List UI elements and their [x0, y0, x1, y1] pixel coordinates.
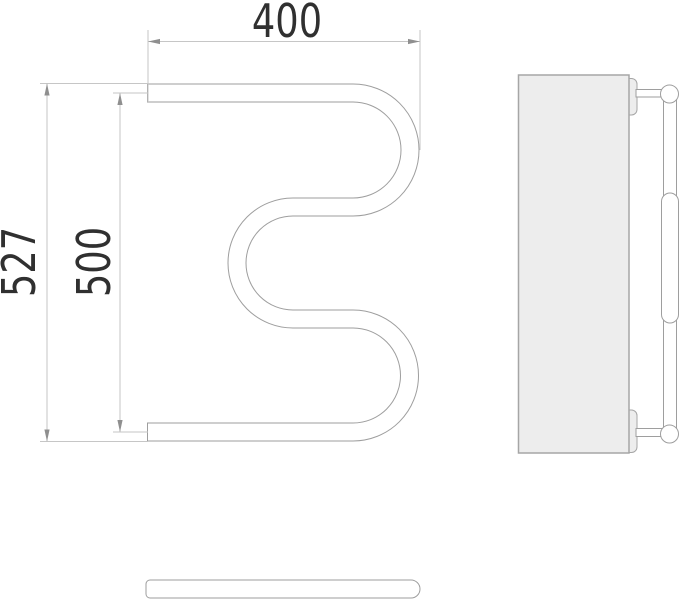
serpentine-tube-outline	[147, 93, 410, 432]
top-view-tube-outline	[146, 580, 420, 598]
bracket-arm-top	[636, 90, 662, 98]
arrowhead-bottom	[44, 430, 49, 442]
arrowhead-left	[148, 39, 160, 44]
side-view	[519, 75, 679, 453]
top-view	[146, 580, 420, 598]
overall-height-dimension-label: 527	[0, 227, 46, 297]
arrowhead-top	[117, 93, 122, 105]
tube-bend-profile	[662, 193, 679, 323]
towel-rail-drawing-canvas: 400 527 500	[0, 0, 680, 600]
front-view	[147, 84, 410, 442]
dimension-axis-height: 500	[67, 93, 148, 432]
arrowhead-right	[408, 39, 420, 44]
arrowhead-top	[44, 84, 49, 96]
arrowhead-bottom	[117, 420, 122, 432]
bracket-ball-top	[661, 85, 679, 103]
width-dimension-label: 400	[252, 0, 322, 48]
bracket-arm-bottom	[636, 429, 662, 437]
dimension-width: 400	[148, 0, 420, 150]
wall-panel	[519, 75, 630, 453]
technical-drawing-page: 400 527 500	[0, 0, 680, 600]
serpentine-tube-body	[147, 93, 410, 432]
bracket-ball-bottom	[661, 425, 679, 443]
axis-height-dimension-label: 500	[67, 227, 121, 297]
